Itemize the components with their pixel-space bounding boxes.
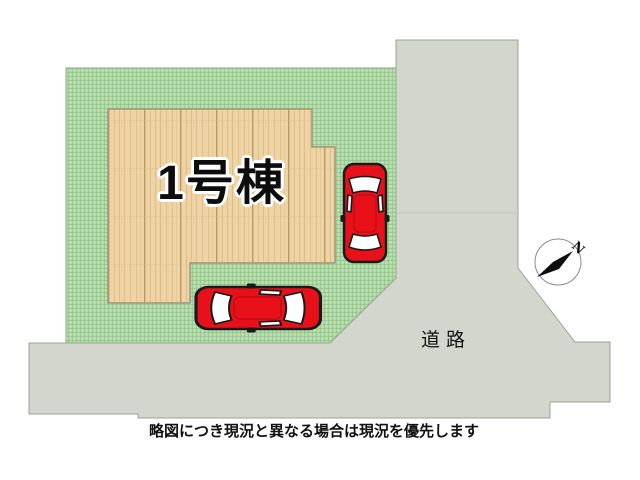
road-label: 道路	[421, 325, 471, 352]
site-plan-canvas: N 1号棟 道路 略図につき現況と異なる場合は現況を優先します	[0, 0, 640, 480]
car-icon	[341, 164, 390, 262]
site-plan-drawing: N	[0, 0, 640, 480]
building-label: 1号棟	[108, 160, 335, 208]
car-icon	[196, 284, 320, 333]
compass-icon: N	[535, 239, 587, 285]
caption-text: 略図につき現況と異なる場合は現況を優先します	[0, 420, 628, 441]
